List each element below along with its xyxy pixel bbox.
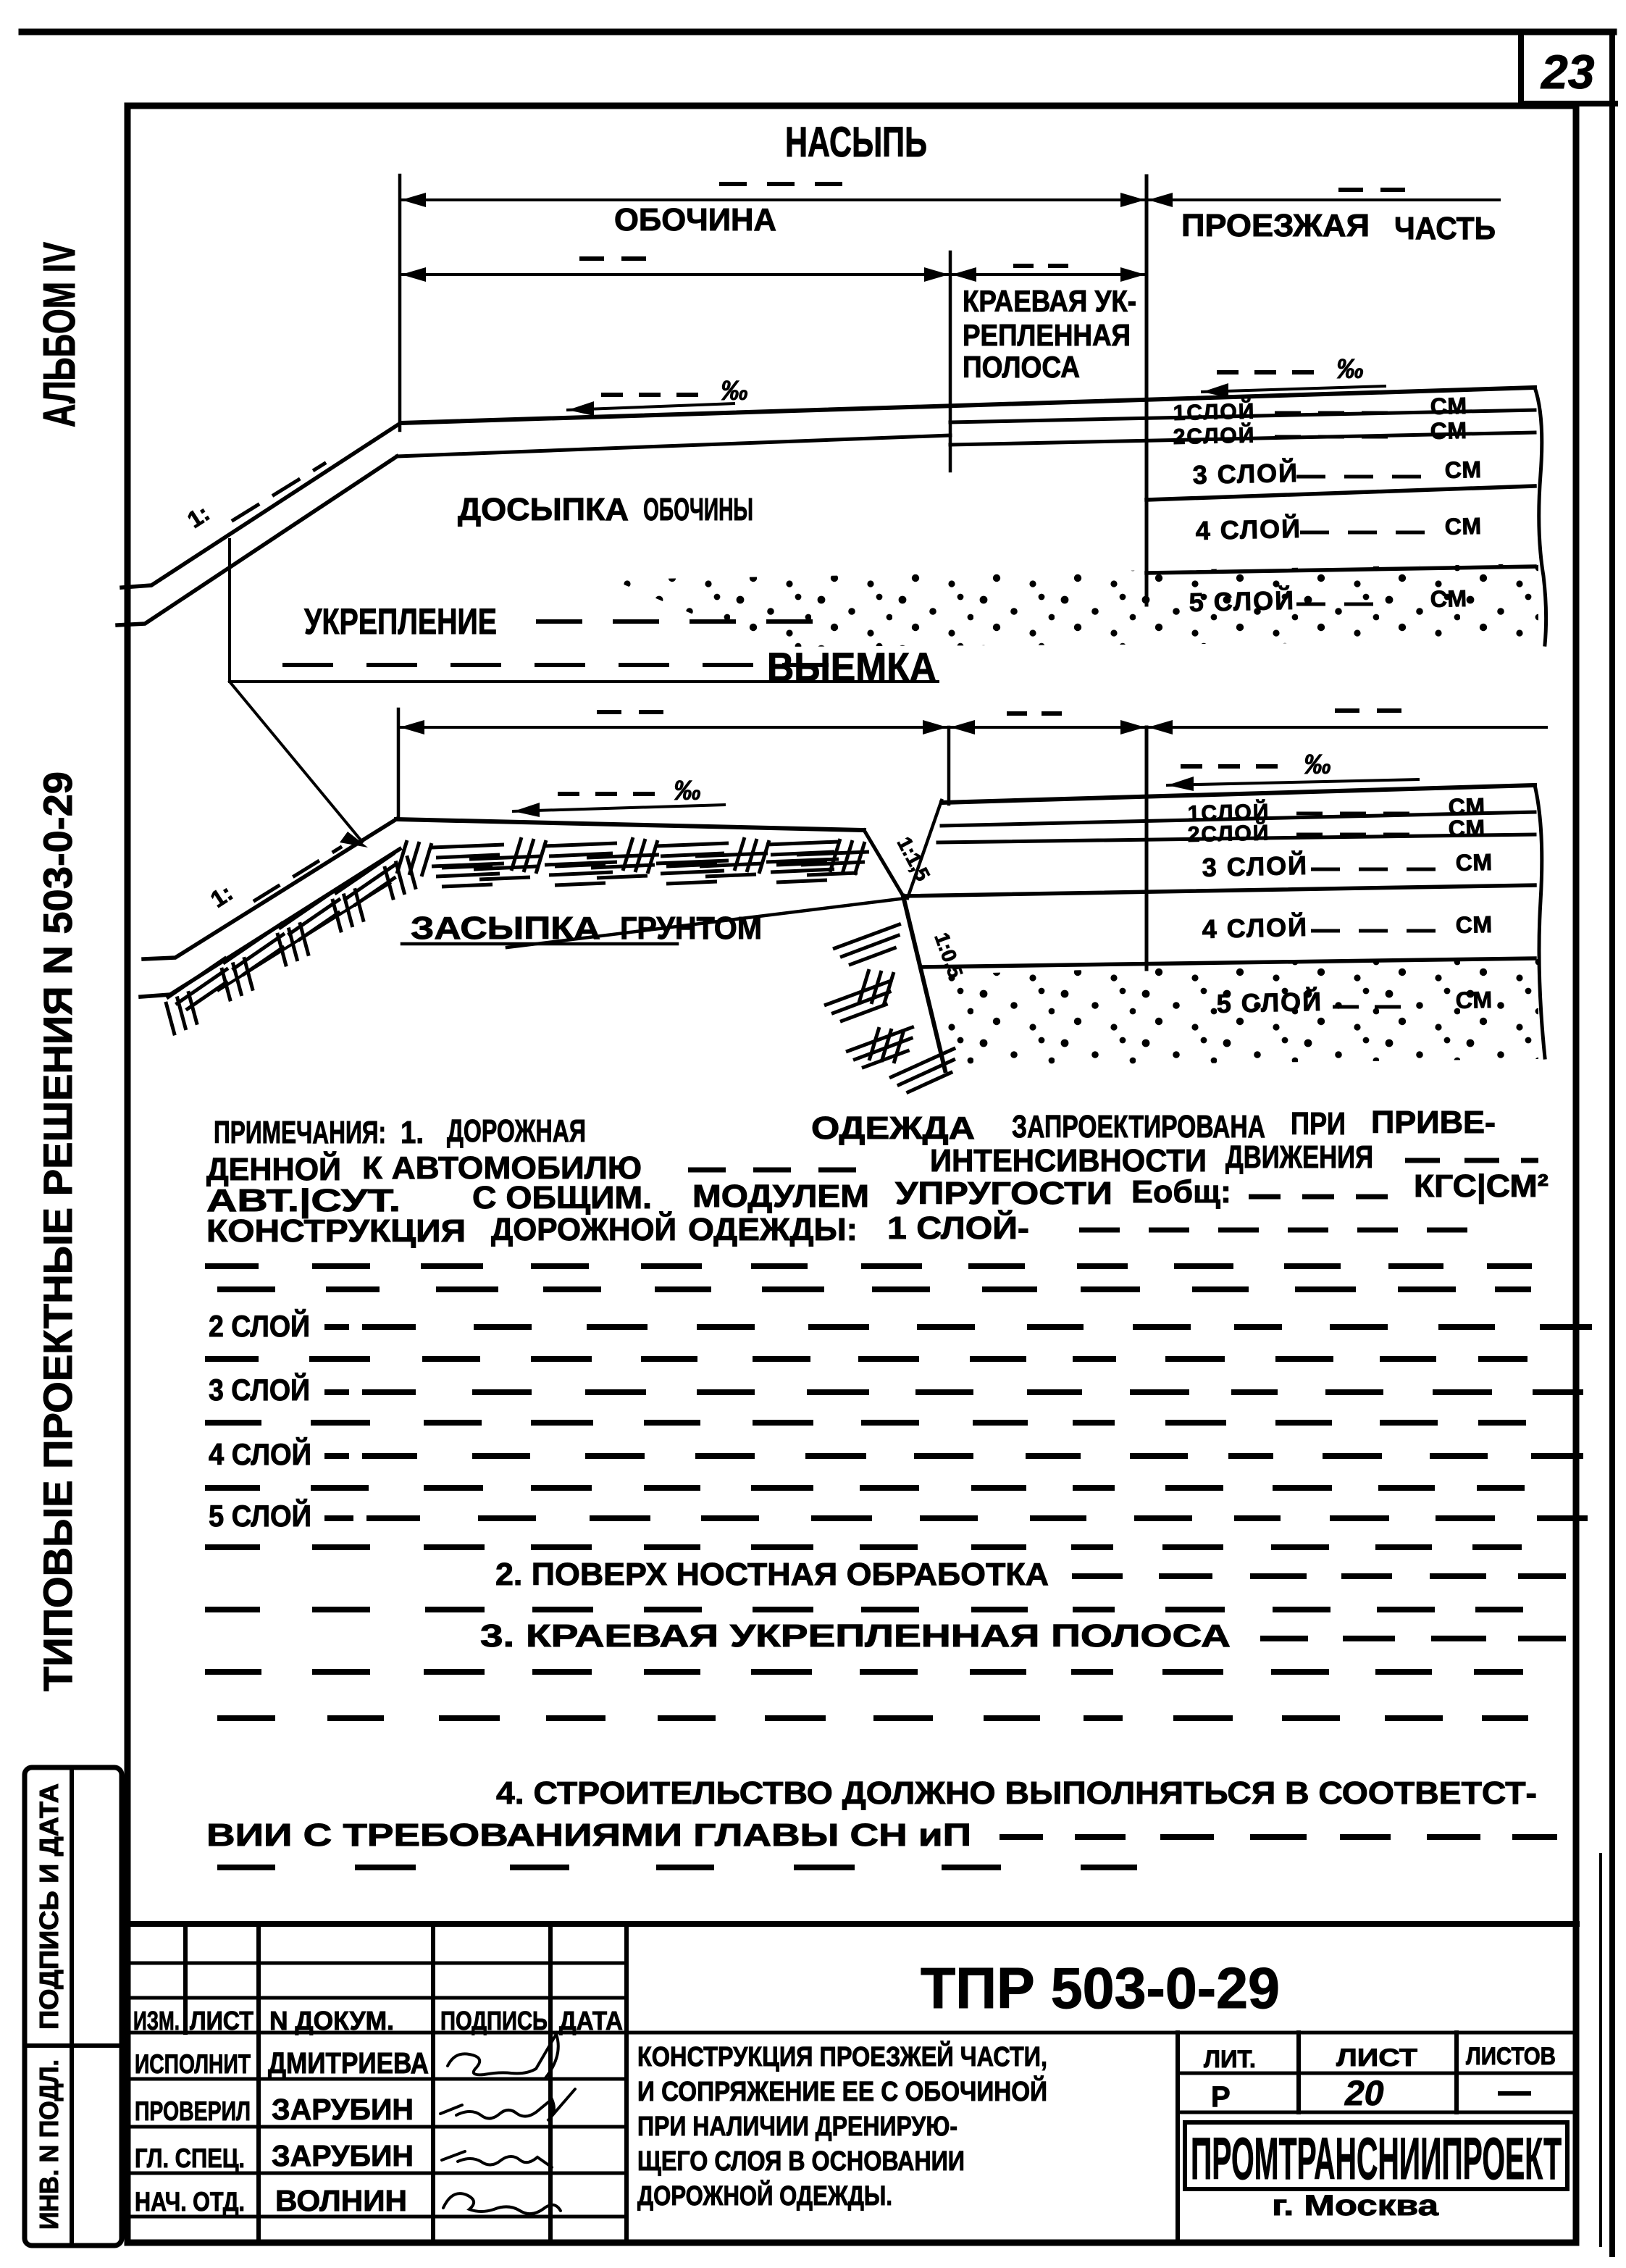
svg-text:2 СЛОЙ: 2 СЛОЙ: [209, 1308, 310, 1343]
svg-text:КГС|СМ²: КГС|СМ²: [1414, 1168, 1549, 1205]
svg-text:ДОРОЖНОЙ ОДЕЖДЫ.: ДОРОЖНОЙ ОДЕЖДЫ.: [637, 2179, 892, 2211]
svg-text:Р: Р: [1211, 2081, 1231, 2113]
svg-text:Еобщ:: Еобщ:: [1131, 1174, 1231, 1210]
svg-text:ИСПОЛНИТ: ИСПОЛНИТ: [135, 2049, 251, 2079]
svg-text:СМ: СМ: [1455, 849, 1493, 876]
svg-text:ГЛ. СПЕЦ.: ГЛ. СПЕЦ.: [135, 2143, 245, 2173]
svg-text:ТИПОВЫЕ ПРОЕКТНЫЕ РЕШЕНИЯ N: ТИПОВЫЕ ПРОЕКТНЫЕ РЕШЕНИЯ N 503-0-29: [35, 771, 80, 1691]
svg-text:3 СЛОЙ: 3 СЛОЙ: [209, 1372, 310, 1407]
svg-text:23: 23: [1540, 45, 1594, 99]
svg-text:ПРОВЕРИЛ: ПРОВЕРИЛ: [135, 2096, 251, 2126]
svg-text:ОДЕЖДЫ:: ОДЕЖДЫ:: [688, 1212, 858, 1247]
svg-text:ЛИТ.: ЛИТ.: [1204, 2046, 1256, 2073]
svg-text:ПОДПИСЬ И ДАТА: ПОДПИСЬ И ДАТА: [34, 1783, 64, 2030]
svg-text:2. ПОВЕРХ НОСТНАЯ ОБРАБОТКА: 2. ПОВЕРХ НОСТНАЯ ОБРАБОТКА: [495, 1557, 1049, 1592]
svg-text:ЗАРУБИН: ЗАРУБИН: [272, 2139, 414, 2172]
svg-text:4 СЛОЙ: 4 СЛОЙ: [209, 1436, 311, 1471]
svg-text:ЛИСТОВ: ЛИСТОВ: [1466, 2043, 1556, 2070]
svg-text:ДМИТРИЕВА: ДМИТРИЕВА: [268, 2046, 429, 2080]
svg-text:ПРИВЕ-: ПРИВЕ-: [1371, 1105, 1496, 1140]
svg-text:3 СЛОЙ: 3 СЛОЙ: [1192, 457, 1299, 490]
svg-text:ЛИСТ: ЛИСТ: [1336, 2044, 1417, 2072]
svg-text:ПОДПИСЬ: ПОДПИСЬ: [440, 2006, 548, 2035]
svg-text:ЧАСТЬ: ЧАСТЬ: [1394, 211, 1496, 246]
svg-text:ДОРОЖНАЯ: ДОРОЖНАЯ: [447, 1113, 586, 1149]
svg-text:ПОЛОСА: ПОЛОСА: [963, 350, 1080, 384]
svg-text:ПРИМЕЧАНИЯ:: ПРИМЕЧАНИЯ:: [214, 1115, 386, 1150]
svg-text:‰: ‰: [1304, 750, 1331, 780]
svg-text:С ОБЩИМ.: С ОБЩИМ.: [472, 1180, 652, 1215]
svg-text:ТПР 503-0-29: ТПР 503-0-29: [921, 1956, 1280, 2020]
svg-text:1.: 1.: [401, 1115, 424, 1150]
svg-text:5 СЛОЙ: 5 СЛОЙ: [209, 1498, 311, 1533]
svg-text:СМ: СМ: [1430, 393, 1467, 419]
svg-text:ПРИ НАЛИЧИИ ДРЕНИРУЮ-: ПРИ НАЛИЧИИ ДРЕНИРУЮ-: [637, 2112, 957, 2142]
svg-text:ЛИСТ: ЛИСТ: [190, 2006, 253, 2035]
svg-text:2СЛОЙ: 2СЛОЙ: [1187, 820, 1270, 847]
svg-text:РЕПЛЕННАЯ: РЕПЛЕННАЯ: [963, 318, 1131, 352]
svg-text:3. КРАЕВАЯ УКРЕПЛЕННАЯ ПОЛО: 3. КРАЕВАЯ УКРЕПЛЕННАЯ ПОЛОСА: [480, 1618, 1231, 1654]
svg-text:‰: ‰: [674, 776, 701, 806]
svg-text:г. Москва: г. Москва: [1272, 2190, 1439, 2222]
svg-text:ПРОЕЗЖАЯ: ПРОЕЗЖАЯ: [1181, 208, 1370, 243]
svg-text:УПРУГОСТИ: УПРУГОСТИ: [895, 1176, 1112, 1211]
svg-text:СМ: СМ: [1430, 417, 1467, 444]
svg-text:АЛЬБОМ IV: АЛЬБОМ IV: [35, 242, 85, 427]
svg-text:КОНСТРУКЦИЯ ПРОЕЗЖЕЙ ЧАСТИ,: КОНСТРУКЦИЯ ПРОЕЗЖЕЙ ЧАСТИ,: [637, 2040, 1047, 2072]
svg-text:1 СЛОЙ-: 1 СЛОЙ-: [887, 1209, 1029, 1246]
svg-text:СМ: СМ: [1444, 513, 1482, 540]
svg-text:2СЛОЙ: 2СЛОЙ: [1173, 422, 1255, 449]
svg-text:СМ: СМ: [1448, 815, 1485, 842]
svg-text:ДЕННОЙ: ДЕННОЙ: [206, 1150, 341, 1187]
svg-text:ДОРОЖНОЙ: ДОРОЖНОЙ: [491, 1210, 676, 1247]
svg-text:ДАТА: ДАТА: [559, 2006, 623, 2035]
svg-text:ЗАРУБИН: ЗАРУБИН: [272, 2093, 414, 2126]
svg-text:МОДУЛЕМ: МОДУЛЕМ: [692, 1179, 869, 1214]
svg-text:ИЗМ.: ИЗМ.: [133, 2006, 180, 2035]
svg-text:4 СЛОЙ: 4 СЛОЙ: [1202, 911, 1308, 944]
svg-text:КРАЕВАЯ УК-: КРАЕВАЯ УК-: [963, 284, 1136, 318]
svg-text:ВЫЕМКА: ВЫЕМКА: [767, 644, 936, 690]
svg-text:4 СЛОЙ: 4 СЛОЙ: [1195, 513, 1302, 545]
svg-text:ЗАСЫПКА: ЗАСЫПКА: [411, 911, 600, 946]
svg-text:КОНСТРУКЦИЯ: КОНСТРУКЦИЯ: [206, 1213, 466, 1249]
svg-text:ЩЕГО СЛОЯ В ОСНОВАНИИ: ЩЕГО СЛОЯ В ОСНОВАНИИ: [637, 2146, 965, 2177]
svg-text:‰: ‰: [1336, 354, 1364, 385]
svg-text:ДОСЫПКА: ДОСЫПКА: [458, 492, 629, 527]
svg-text:И СОПРЯЖЕНИЕ ЕЕ С ОБОЧИНОЙ: И СОПРЯЖЕНИЕ ЕЕ С ОБОЧИНОЙ: [637, 2075, 1047, 2107]
svg-text:НАЧ. ОТД.: НАЧ. ОТД.: [135, 2187, 245, 2217]
svg-text:ИНТЕНСИВНОСТИ: ИНТЕНСИВНОСТИ: [930, 1143, 1207, 1179]
svg-text:ВОЛНИН: ВОЛНИН: [275, 2184, 407, 2217]
svg-text:‰: ‰: [721, 376, 748, 406]
svg-text:N ДОКУМ.: N ДОКУМ.: [269, 2006, 394, 2035]
svg-text:ГРУНТОМ: ГРУНТОМ: [620, 911, 762, 946]
svg-text:ОБОЧИНЫ: ОБОЧИНЫ: [643, 492, 753, 527]
svg-text:ДВИЖЕНИЯ: ДВИЖЕНИЯ: [1225, 1139, 1373, 1175]
svg-text:ВИИ С ТРЕБОВАНИЯМИ ГЛАВЫ С: ВИИ С ТРЕБОВАНИЯМИ ГЛАВЫ СН иП: [206, 1817, 971, 1853]
svg-text:УКРЕПЛЕНИЕ: УКРЕПЛЕНИЕ: [304, 601, 497, 642]
svg-text:ПРОМТРАНСНИИПРОЕКТ: ПРОМТРАНСНИИПРОЕКТ: [1191, 2126, 1562, 2192]
svg-text:ПРИ: ПРИ: [1291, 1106, 1346, 1142]
svg-text:4. СТРОИТЕЛЬСТВО ДОЛЖНО ВЫПО: 4. СТРОИТЕЛЬСТВО ДОЛЖНО ВЫПОЛНЯТЬСЯ В СО…: [496, 1775, 1537, 1811]
svg-text:3 СЛОЙ: 3 СЛОЙ: [1202, 850, 1308, 882]
svg-text:ИНВ. N ПОДЛ.: ИНВ. N ПОДЛ.: [34, 2059, 64, 2230]
svg-text:НАСЫПЬ: НАСЫПЬ: [785, 119, 927, 166]
svg-text:СМ: СМ: [1444, 456, 1482, 483]
svg-text:СМ: СМ: [1455, 911, 1493, 938]
svg-text:1СЛОЙ: 1СЛОЙ: [1173, 398, 1255, 425]
svg-text:ОДЕЖДА: ОДЕЖДА: [811, 1110, 975, 1146]
svg-text:20: 20: [1344, 2075, 1384, 2113]
svg-text:ОБОЧИНА: ОБОЧИНА: [614, 202, 776, 238]
